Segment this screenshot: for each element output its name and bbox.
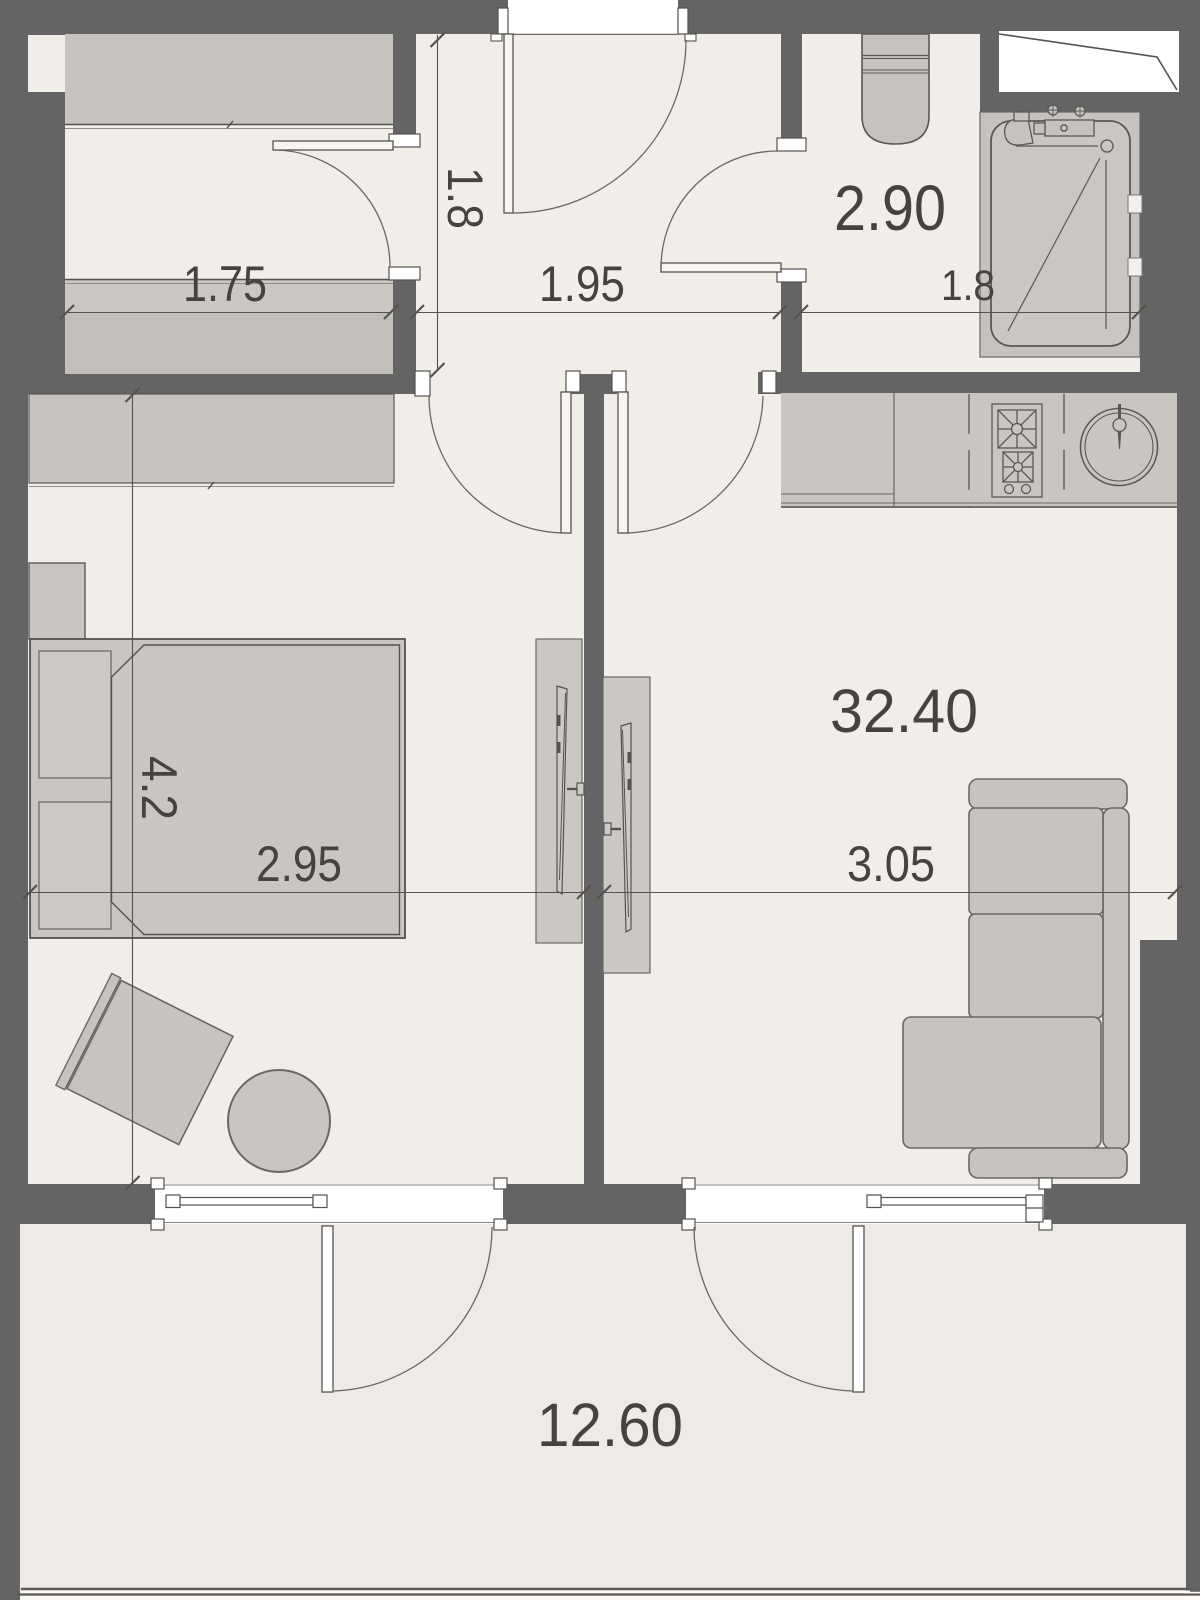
svg-text:12.60: 12.60 [537,1391,683,1459]
svg-text:1.75: 1.75 [183,256,267,312]
svg-text:2.95: 2.95 [256,836,342,892]
svg-text:1.8: 1.8 [941,262,995,310]
svg-text:1.8: 1.8 [437,167,493,229]
svg-text:4.2: 4.2 [131,756,187,820]
svg-text:2.90: 2.90 [834,172,946,244]
svg-text:3.05: 3.05 [847,836,935,892]
svg-text:32.40: 32.40 [830,677,978,745]
svg-text:1.95: 1.95 [539,256,625,312]
